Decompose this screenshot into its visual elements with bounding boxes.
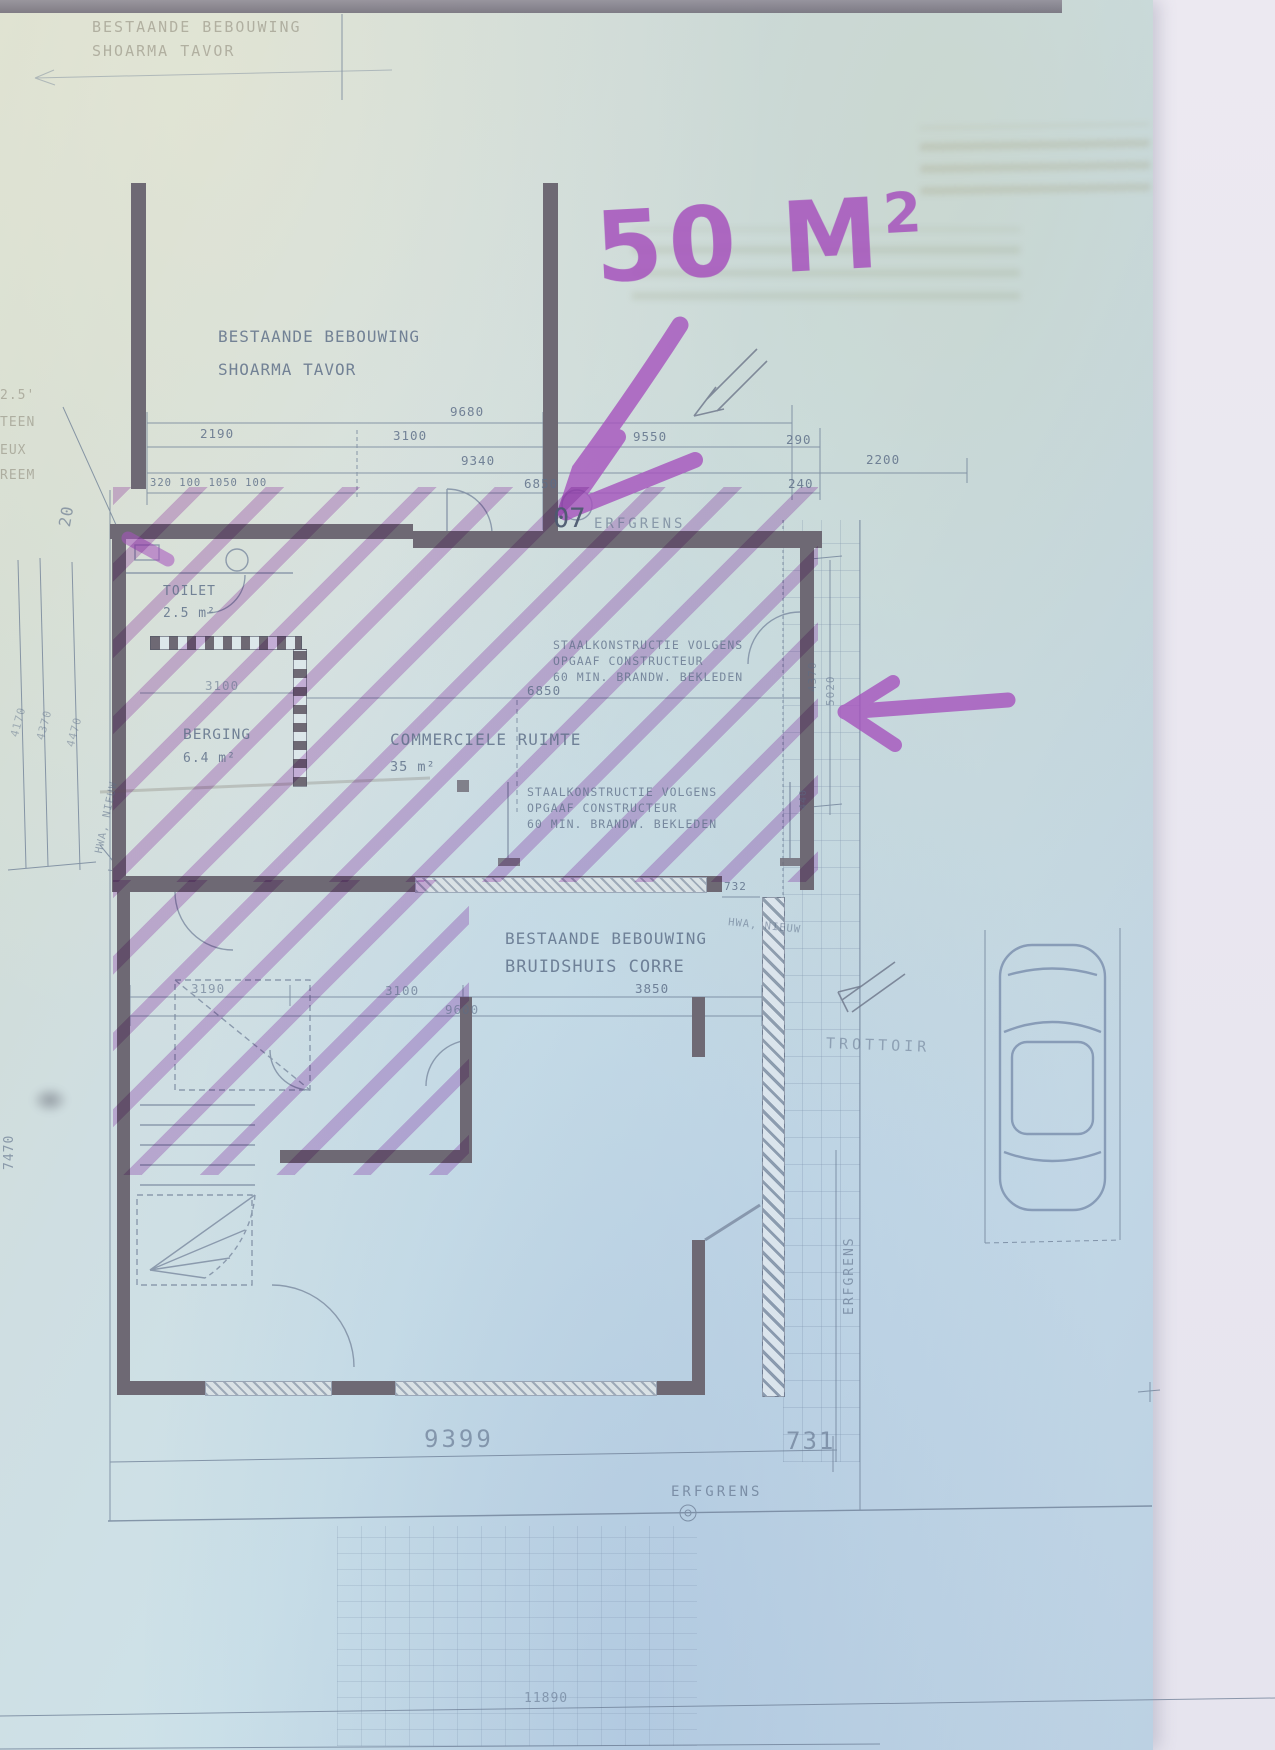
- trottoir-label: TROTTOIR: [826, 1034, 931, 1056]
- steel-note-upper: STAALKONSTRUCTIE VOLGENS OPGAAF CONSTRUC…: [553, 637, 743, 685]
- dim-5020: 5020: [824, 676, 837, 707]
- room-berging-name: BERGING: [183, 727, 251, 743]
- dim-9680: 9680: [450, 404, 484, 419]
- marker-hatch-lower: [113, 880, 469, 1175]
- boundary-number: 07: [553, 503, 586, 534]
- dim-2200: 2200: [866, 452, 900, 467]
- margin-fragment-3: EUX: [0, 443, 26, 458]
- car-icon: [1000, 945, 1105, 1210]
- dim-732: 732: [724, 880, 747, 893]
- dim-3850: 3850: [635, 981, 669, 996]
- window-hatch: [205, 1381, 332, 1396]
- dim-3100c: 3100: [385, 983, 419, 998]
- scanned-floor-plan: 50 M2 BESTAANDE BEBOUWING SHOARMA TAVOR …: [0, 0, 1275, 1750]
- dim-440: 440: [798, 789, 809, 810]
- dim-2190: 2190: [200, 426, 234, 441]
- dim-290: 290: [786, 432, 812, 447]
- room-toilet-name: TOILET: [163, 584, 216, 599]
- dim-3100a: 3100: [393, 428, 427, 443]
- room-toilet-area: 2.5 m²: [163, 606, 216, 621]
- dim-row-small: 320 100 1050 100: [150, 477, 267, 489]
- top-sheet-label-1: BESTAANDE BEBOUWING: [92, 18, 302, 36]
- dim-11890: 11890: [524, 1691, 568, 1706]
- area-value: 50 M: [592, 177, 887, 305]
- dim-9340: 9340: [461, 453, 495, 468]
- lower-building-label-1: BESTAANDE BEBOUWING: [505, 929, 707, 948]
- neighbor-brick-wall: [762, 897, 785, 1397]
- margin-fragment-4: REEM: [0, 468, 35, 483]
- erfgrens-bottom-label: ERFGRENS: [671, 1484, 762, 1500]
- dim-3190: 3190: [191, 981, 225, 996]
- dim-9550: 9550: [633, 429, 667, 444]
- pen-arrow-right: [838, 962, 905, 1012]
- dim-240: 240: [788, 476, 814, 491]
- dim-6850a: 6850: [524, 476, 558, 491]
- top-sheet-label-2: SHOARMA TAVOR: [92, 42, 235, 60]
- lower-building-label-2: BRUIDSHUIS CORRE: [505, 957, 685, 977]
- handwritten-area-note: 50 M2: [592, 174, 931, 304]
- area-superscript: 2: [881, 180, 929, 246]
- dim-731: 731: [786, 1427, 835, 1455]
- upper-building-label-1: BESTAANDE BEBOUWING: [218, 327, 420, 346]
- upper-building-label-2: SHOARMA TAVOR: [218, 360, 356, 379]
- steel-note-lower: STAALKONSTRUCTIE VOLGENS OPGAAF CONSTRUC…: [527, 784, 717, 832]
- room-berging-area: 6.4 m²: [183, 751, 236, 766]
- dim-7470: 7470: [2, 1135, 17, 1170]
- dim-6850b: 6850: [527, 683, 561, 698]
- dim-9399: 9399: [424, 1425, 494, 1453]
- dim-4370-right: 4370: [806, 662, 819, 693]
- dim-20: 20: [55, 504, 77, 528]
- margin-fragment-2: TEEN: [0, 415, 35, 430]
- erfgrens-top-label: ERFGRENS: [594, 516, 685, 532]
- margin-fragment-1: 2.5': [0, 388, 35, 403]
- window-hatch: [395, 1381, 657, 1396]
- pen-arrow-top: [694, 349, 767, 416]
- dim-9600: 9600: [445, 1002, 479, 1017]
- erfgrens-right-label: ERFGRENS: [842, 1236, 857, 1315]
- room-commercial-area: 35 m²: [390, 759, 436, 775]
- dim-3100b: 3100: [205, 678, 239, 693]
- room-commercial-name: COMMERCIELE RUIMTE: [390, 730, 581, 749]
